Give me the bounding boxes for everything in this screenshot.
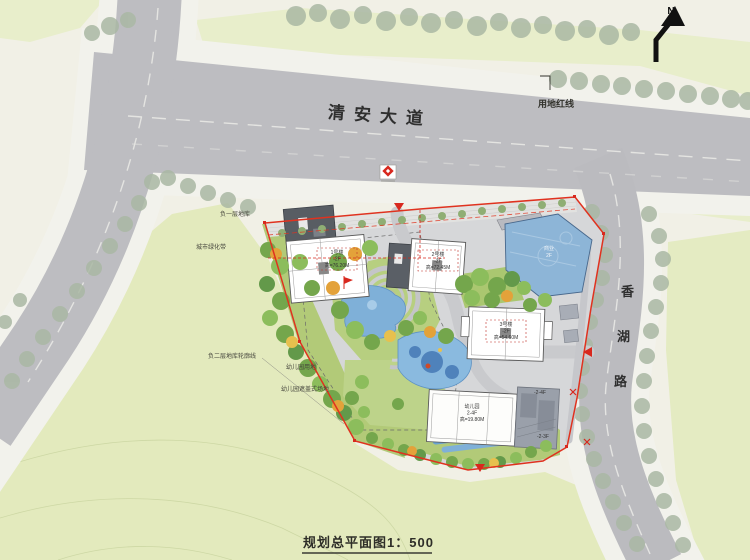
svg-text:高=19.80M: 高=19.80M (460, 416, 485, 423)
svg-text:2-4F: 2-4F (467, 411, 477, 417)
svg-text:2F: 2F (546, 253, 552, 259)
svg-text:高=54.60M: 高=54.60M (494, 334, 519, 341)
east-road-char-1: 香 (620, 284, 635, 299)
drawing-title: 规划总平面图1：500 (303, 535, 434, 550)
svg-text:-2F: -2F (502, 329, 510, 335)
svg-text:高=72.45M: 高=72.45M (426, 264, 451, 271)
svg-text:-2F: -2F (333, 257, 341, 263)
svg-text:3号楼: 3号楼 (500, 321, 513, 328)
svg-text:-2F: -2F (434, 259, 442, 265)
svg-text:高=76.20M: 高=76.20M (325, 262, 350, 269)
kindergarten-land-label: 幼儿园用地 (286, 363, 316, 371)
east-road-char-2: 湖 (617, 329, 630, 344)
kindergarten-canopy-label: 幼儿园遮盖式场地 (281, 385, 329, 393)
transit-entrance-icon (380, 165, 396, 181)
east-road-char-3: 路 (614, 374, 628, 389)
svg-text:2号楼: 2号楼 (432, 251, 445, 258)
site-plan-image: N 清安大道 用地红线 香 湖 路 负一层地库 城市绿化带 负二层地库轮廓线 幼… (0, 0, 750, 560)
svg-text:1号楼: 1号楼 (331, 249, 344, 256)
basement2-label: 负二层地库轮廓线 (208, 352, 256, 360)
annex-tag-lower: -2-3F (537, 434, 549, 440)
svg-text:幼儿园: 幼儿园 (464, 403, 479, 410)
annex-tag-upper: -2-4F (534, 390, 546, 396)
green-belt-label: 城市绿化带 (196, 243, 226, 251)
svg-text:商业: 商业 (544, 245, 554, 252)
basement1-label: 负一层地库 (220, 210, 250, 218)
red-line-label: 用地红线 (537, 98, 574, 109)
